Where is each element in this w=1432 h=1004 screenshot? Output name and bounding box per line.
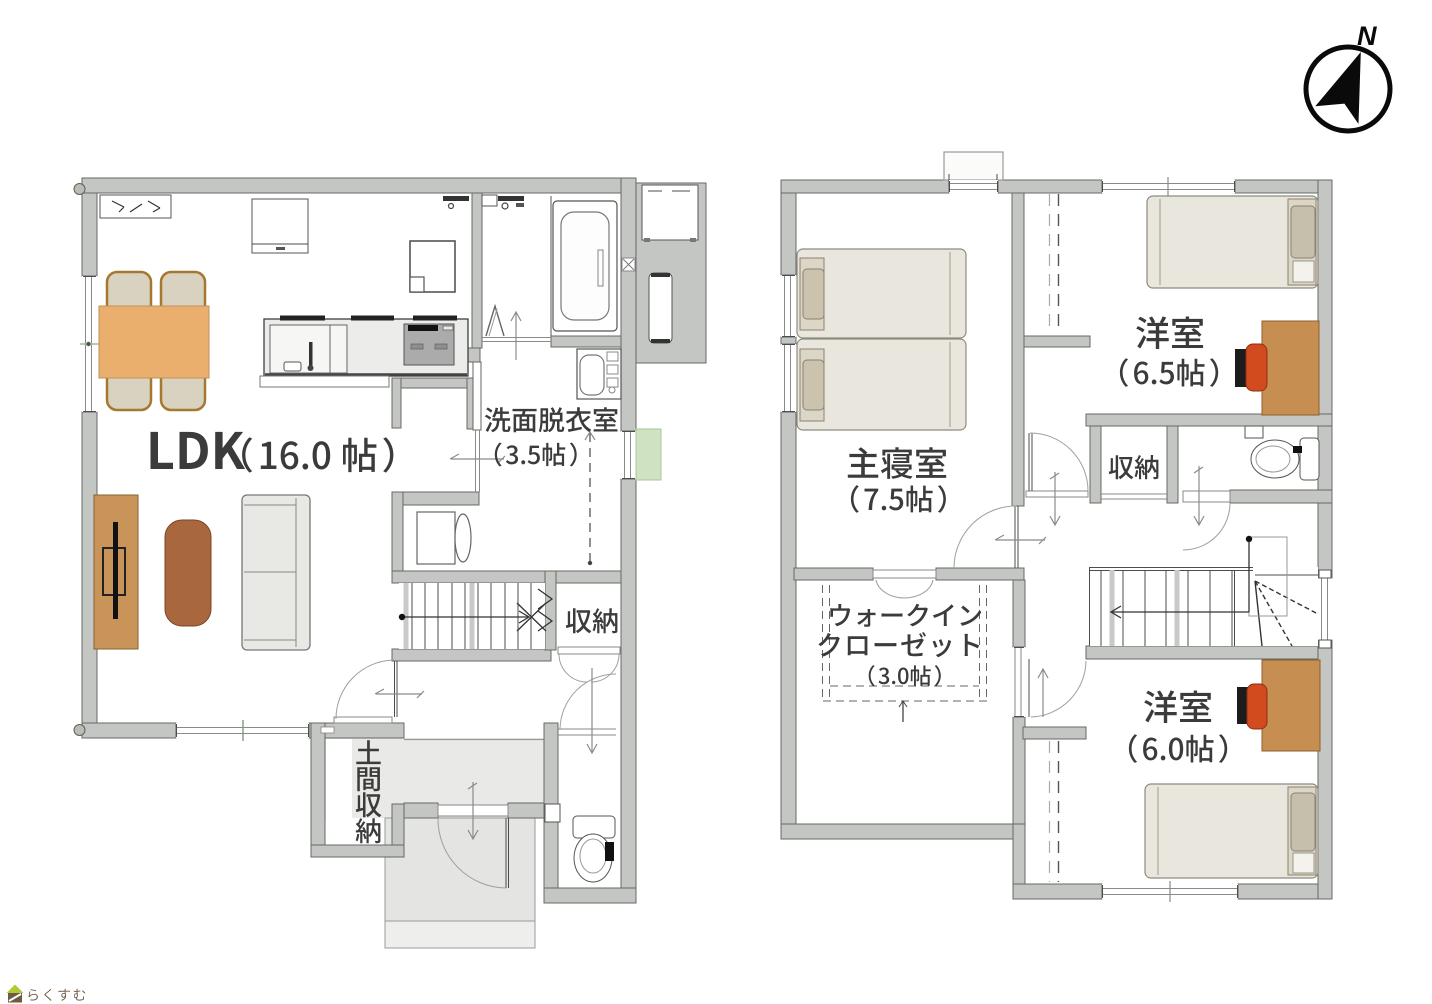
svg-text:N: N — [1357, 21, 1377, 51]
